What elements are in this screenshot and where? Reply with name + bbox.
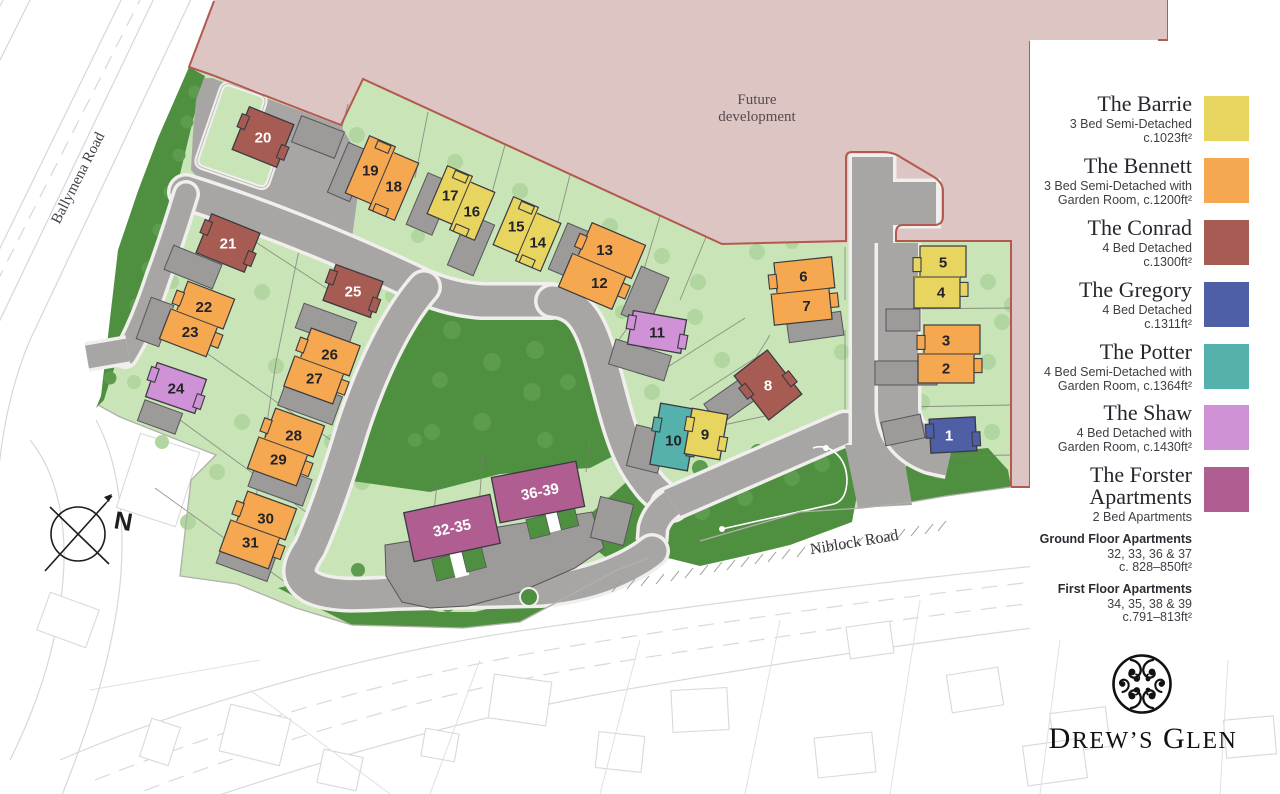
svg-text:2: 2	[942, 361, 950, 378]
svg-text:12: 12	[591, 275, 608, 292]
svg-text:11: 11	[649, 325, 665, 342]
svg-text:2 Bed Apartments: 2 Bed Apartments	[1093, 510, 1192, 524]
svg-text:Apartments: Apartments	[1089, 484, 1192, 509]
svg-text:5: 5	[939, 255, 947, 272]
svg-text:Ground Floor Apartments: Ground Floor Apartments	[1040, 532, 1192, 546]
svg-text:16: 16	[463, 203, 480, 220]
svg-text:10: 10	[665, 433, 682, 450]
svg-text:c.791–813ft²: c.791–813ft²	[1123, 610, 1193, 624]
svg-text:3 Bed Semi-Detached: 3 Bed Semi-Detached	[1070, 117, 1192, 131]
svg-text:14: 14	[529, 234, 546, 251]
svg-text:First Floor Apartments: First Floor Apartments	[1058, 582, 1192, 596]
svg-text:1: 1	[945, 428, 953, 445]
svg-text:25: 25	[345, 284, 362, 301]
svg-text:The Bennett: The Bennett	[1084, 153, 1192, 178]
svg-text:4 Bed Detached: 4 Bed Detached	[1102, 241, 1192, 255]
svg-text:c.1311ft²: c.1311ft²	[1144, 317, 1192, 331]
svg-text:4 Bed Semi-Detached with: 4 Bed Semi-Detached with	[1044, 365, 1192, 379]
svg-text:34, 35, 38 & 39: 34, 35, 38 & 39	[1107, 597, 1192, 611]
svg-text:23: 23	[182, 324, 199, 341]
svg-text:4 Bed Detached: 4 Bed Detached	[1102, 303, 1192, 317]
svg-text:15: 15	[508, 219, 525, 236]
svg-text:18: 18	[385, 179, 402, 196]
svg-text:28: 28	[285, 427, 302, 444]
svg-text:Garden Room, c.1200ft²: Garden Room, c.1200ft²	[1058, 193, 1192, 207]
svg-text:31: 31	[242, 535, 259, 552]
svg-text:c.1023ft²: c.1023ft²	[1143, 131, 1192, 145]
svg-text:8: 8	[764, 378, 772, 395]
svg-text:The Shaw: The Shaw	[1103, 400, 1192, 425]
svg-text:Future: Future	[737, 92, 777, 108]
svg-text:13: 13	[596, 242, 613, 259]
svg-text:c. 828–850ft²: c. 828–850ft²	[1119, 560, 1192, 574]
svg-text:6: 6	[799, 268, 807, 285]
svg-text:The Barrie: The Barrie	[1097, 91, 1192, 116]
svg-text:development: development	[718, 109, 796, 125]
svg-text:27: 27	[306, 371, 323, 388]
svg-text:c.1300ft²: c.1300ft²	[1143, 255, 1192, 269]
svg-text:4 Bed Detached with: 4 Bed Detached with	[1077, 426, 1192, 440]
svg-text:Garden Room, c.1364ft²: Garden Room, c.1364ft²	[1058, 379, 1192, 393]
svg-text:Garden Room, c.1430ft²: Garden Room, c.1430ft²	[1058, 440, 1192, 454]
svg-text:24: 24	[168, 381, 185, 398]
svg-text:The Potter: The Potter	[1100, 339, 1193, 364]
svg-text:The Gregory: The Gregory	[1079, 277, 1192, 302]
svg-text:29: 29	[270, 452, 287, 469]
svg-text:The Conrad: The Conrad	[1088, 215, 1192, 240]
svg-text:26: 26	[321, 346, 338, 363]
svg-text:9: 9	[701, 426, 709, 443]
svg-text:19: 19	[362, 162, 379, 179]
svg-text:3 Bed Semi-Detached with: 3 Bed Semi-Detached with	[1044, 179, 1192, 193]
svg-text:7: 7	[802, 298, 810, 315]
svg-text:17: 17	[442, 188, 459, 205]
svg-text:20: 20	[255, 130, 272, 147]
svg-text:22: 22	[196, 299, 213, 316]
svg-text:21: 21	[220, 236, 237, 253]
svg-text:3: 3	[942, 333, 950, 350]
svg-text:4: 4	[937, 285, 946, 302]
svg-text:30: 30	[257, 510, 274, 527]
svg-text:32, 33, 36 & 37: 32, 33, 36 & 37	[1107, 547, 1192, 561]
